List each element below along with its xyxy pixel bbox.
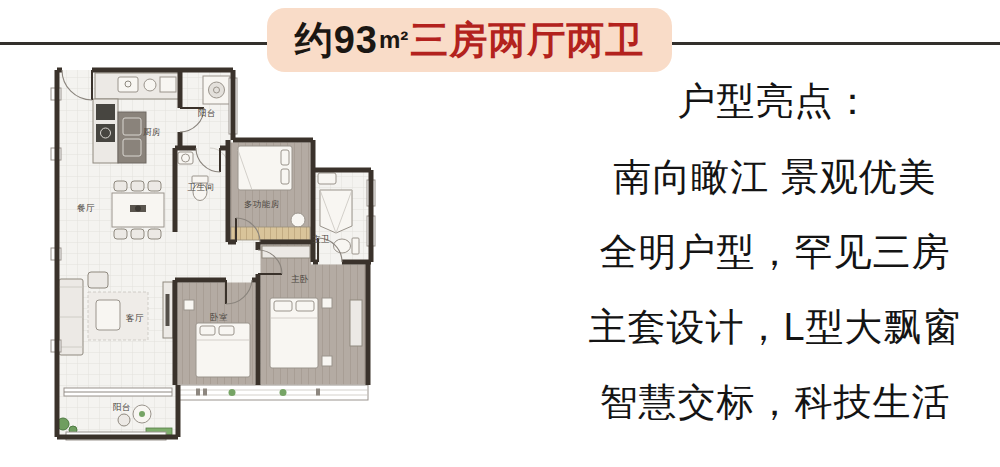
fridge — [118, 112, 146, 163]
highlights-section: 户型亮点： 南向瞰江 景观优美 全明户型，罕见三房 主套设计，L型大飘窗 智慧交… — [550, 82, 1000, 458]
layout-type-label: 三房两厅两卫 — [410, 15, 644, 66]
room-label-master-bathroom: 主卫 — [312, 234, 330, 244]
floor-plan: 厨房 阳台 卫生间 多功能房 主卫 主卧 卧室 客厅 餐厅 阳台 — [48, 62, 378, 442]
room-label-living-room: 客厅 — [126, 313, 144, 323]
room-label-kitchen: 厨房 — [143, 127, 161, 137]
area-value: 约93 — [295, 15, 378, 66]
room-label-balcony-top: 阳台 — [198, 108, 216, 118]
plant-icon — [280, 389, 287, 396]
area-unit: m² — [379, 26, 408, 54]
highlight-line: 主套设计，L型大飘窗 — [550, 308, 1000, 346]
room-label-dining-room: 餐厅 — [77, 203, 95, 213]
room-label-multi-function-room: 多功能房 — [244, 199, 280, 209]
side-table — [291, 213, 305, 227]
dining-table — [112, 181, 164, 239]
wardrobe — [231, 227, 310, 240]
highlight-line: 南向瞰江 景观优美 — [550, 158, 1000, 196]
room-label-balcony-bottom: 阳台 — [113, 402, 131, 412]
room-label-bathroom: 卫生间 — [188, 182, 215, 192]
washing-machine-icon — [203, 76, 230, 104]
room-label-master-bedroom: 主卧 — [291, 274, 309, 284]
bay-window-strip — [178, 385, 368, 400]
highlight-line: 全明户型，罕见三房 — [550, 233, 1000, 271]
tv-stand — [163, 282, 173, 338]
plant-icon — [229, 389, 236, 396]
coffee-table — [96, 300, 120, 330]
slide: 约93 m² 三房两厅两卫 户型亮点： 南向瞰江 景观优美 全明户型，罕见三房 … — [0, 0, 1000, 467]
sliding-door — [64, 388, 172, 396]
highlights-heading: 户型亮点： — [550, 82, 1000, 120]
highlight-line: 智慧交标，科技生活 — [550, 383, 1000, 421]
room-label-bedroom: 卧室 — [210, 312, 228, 322]
multi-room-bed — [238, 146, 292, 190]
